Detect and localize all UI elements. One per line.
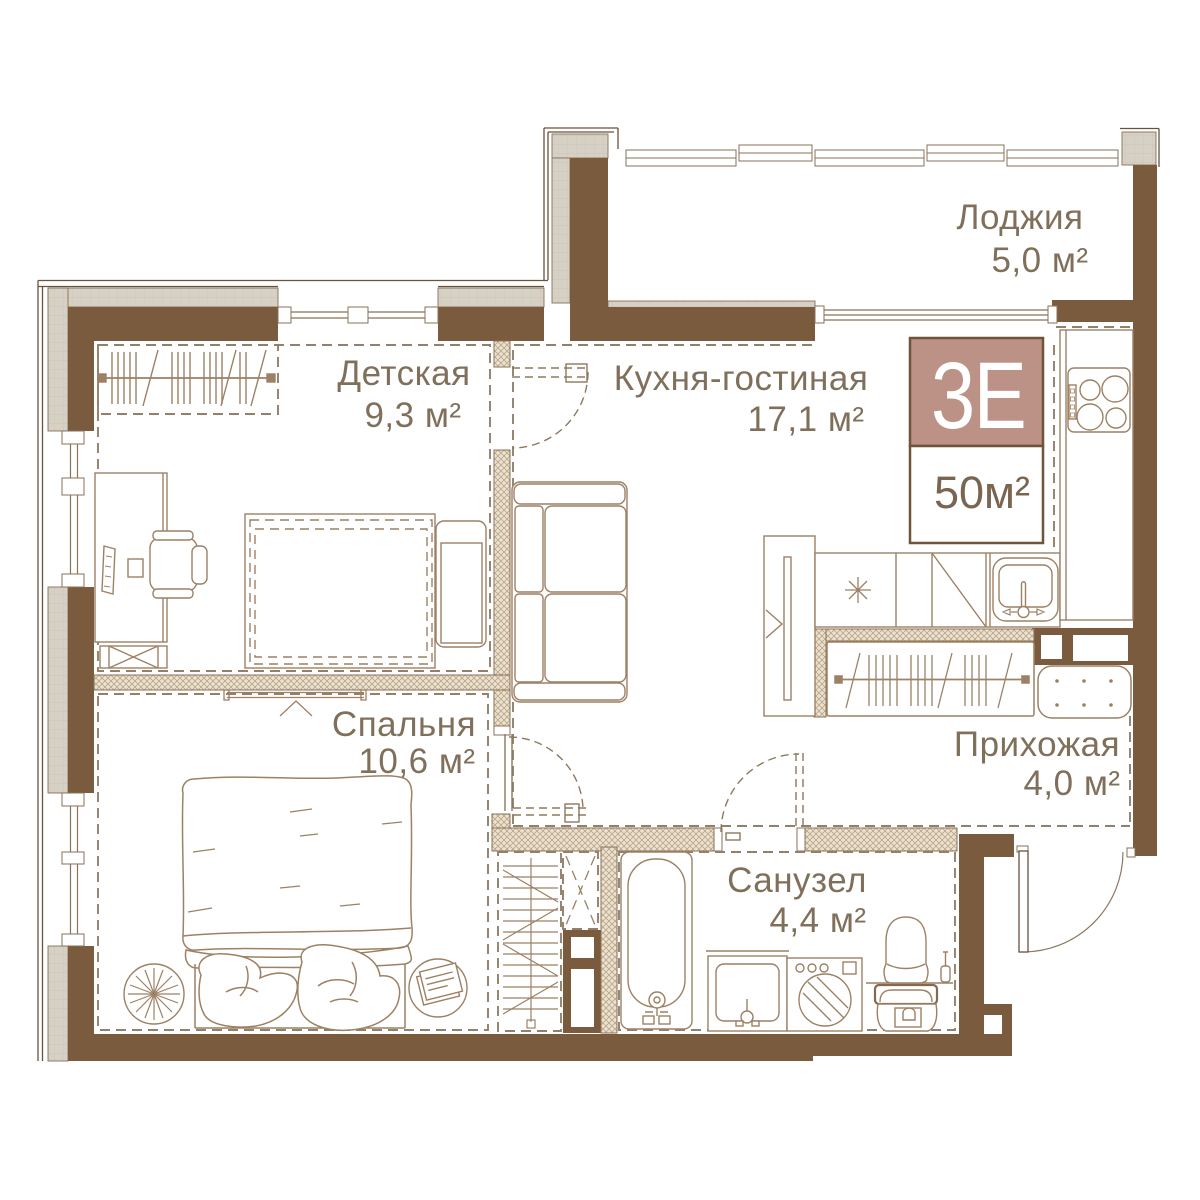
- svg-text:17,1 м²: 17,1 м²: [747, 400, 864, 439]
- svg-text:5,0 м²: 5,0 м²: [991, 241, 1088, 280]
- svg-text:Прихожая: Прихожая: [954, 725, 1120, 764]
- svg-text:4,0 м²: 4,0 м²: [1023, 764, 1120, 803]
- svg-text:Детская: Детская: [337, 354, 470, 393]
- svg-text:3Е: 3Е: [931, 342, 1025, 448]
- svg-text:4,4 м²: 4,4 м²: [769, 901, 866, 940]
- svg-text:Санузел: Санузел: [727, 861, 867, 900]
- svg-text:Спальня: Спальня: [332, 705, 476, 744]
- svg-text:9,3 м²: 9,3 м²: [364, 396, 461, 435]
- svg-text:10,6 м²: 10,6 м²: [358, 742, 475, 781]
- svg-text:Лоджия: Лоджия: [956, 198, 1083, 237]
- svg-text:50м²: 50м²: [934, 467, 1030, 518]
- svg-text:Кухня-гостиная: Кухня-гостиная: [614, 359, 869, 398]
